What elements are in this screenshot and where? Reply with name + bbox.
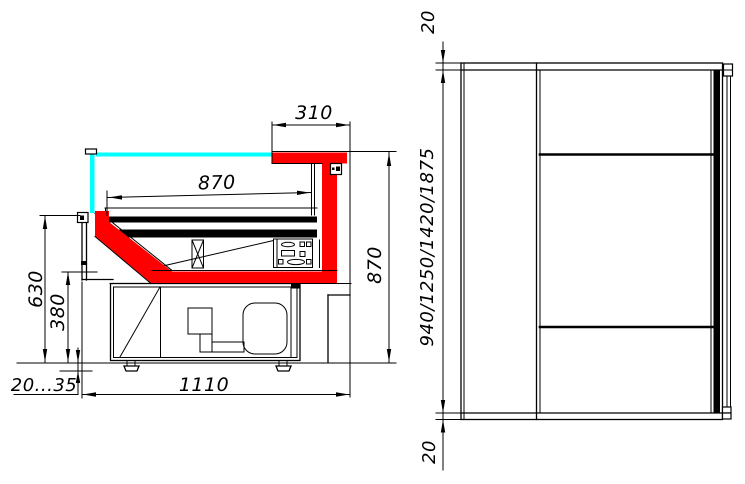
dim-base-height-label: 380 <box>47 293 69 331</box>
technical-drawing: 310 870 630 380 <box>0 0 745 484</box>
machinery-base <box>111 284 301 361</box>
condensing-unit-box <box>188 308 212 334</box>
dim-well-depth: 870 <box>108 172 311 200</box>
dim-overall-depth-label: 1110 <box>179 374 229 396</box>
dim-top-overhang: 20 <box>418 10 445 83</box>
drain-strut <box>152 241 274 269</box>
glass-vertical <box>90 154 95 213</box>
glass-corner-bottom-b <box>723 413 732 419</box>
glass-front <box>90 153 272 214</box>
plan-front-glass-bar <box>714 70 721 413</box>
dim-overall-height: 870 <box>364 153 391 363</box>
glass-corner-bottom-a <box>723 407 732 413</box>
section-view: 310 870 630 380 <box>11 102 396 398</box>
dim-base-height: 380 <box>47 272 70 362</box>
plan-glass-edge <box>723 64 733 419</box>
profile-canopy <box>272 153 347 164</box>
plan-view: 20 940/1250/1420/1875 20 <box>417 10 733 470</box>
dim-overall-height-label: 870 <box>364 246 386 284</box>
panel-fastener <box>81 261 86 265</box>
adjustable-feet <box>124 361 291 372</box>
foot-right <box>276 366 291 371</box>
profile-back-duct <box>322 163 337 283</box>
dim-length-options: 940/1250/1420/1875 <box>417 148 438 347</box>
profile-bottom-duct <box>150 272 337 284</box>
base-tray <box>212 342 244 352</box>
dim-bottom-overhang: 20 <box>419 400 445 464</box>
dim-well-depth-label: 870 <box>198 172 236 195</box>
base-brace <box>120 287 160 357</box>
dim-front-height-label: 630 <box>25 270 47 308</box>
glass-horizontal <box>96 153 272 157</box>
compressor <box>243 303 287 354</box>
dim-length-options-label: 940/1250/1420/1875 <box>417 148 438 347</box>
dim-canopy-overhang: 310 <box>272 102 350 127</box>
dim-front-height: 630 <box>25 216 47 362</box>
glass-cap <box>86 149 97 154</box>
dim-overall-depth: 1110 <box>82 374 350 397</box>
drawing-canvas: 310 870 630 380 <box>0 0 745 484</box>
deck-top-band <box>99 217 317 223</box>
plan-dimensions: 20 940/1250/1420/1875 20 <box>417 10 461 470</box>
dim-canopy-overhang-label: 310 <box>295 102 333 124</box>
dim-top-overhang-label: 20 <box>418 10 439 34</box>
evaporator-box <box>274 239 313 268</box>
foot-left <box>124 366 139 371</box>
dim-leg-adjust-label: 20...35 <box>11 375 77 396</box>
under-deck <box>152 239 313 269</box>
plan-outline <box>461 63 733 420</box>
deck-bottom-band <box>99 230 317 238</box>
dim-bottom-overhang-label: 20 <box>419 440 440 464</box>
